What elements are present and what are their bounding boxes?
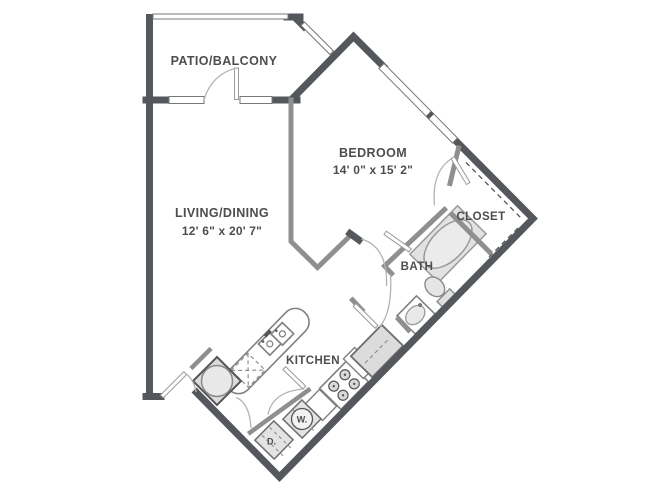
- bath-door-leaf: [353, 304, 378, 329]
- closet-label: CLOSET: [456, 211, 505, 223]
- window-mullion: [429, 114, 432, 117]
- floorplan-canvas: PATIO/BALCONY LIVING/DINING 12' 6" x 20'…: [0, 0, 650, 490]
- patio-door-arc: [204, 68, 237, 100]
- living-dims: 12' 6" x 20' 7": [182, 224, 262, 238]
- entry-door-leaf: [161, 372, 187, 398]
- patio-label: PATIO/BALCONY: [171, 54, 278, 68]
- bedroom-window: [379, 64, 458, 144]
- kitchen-label: KITCHEN: [286, 355, 340, 367]
- bath-label: BATH: [401, 261, 434, 273]
- laundry-door-leaf: [283, 367, 306, 389]
- bath-door-arc: [380, 275, 391, 328]
- living-label: LIVING/DINING: [175, 206, 269, 220]
- patio-railing: [153, 14, 288, 19]
- patio-door-leaf: [235, 68, 239, 100]
- living-window: [240, 97, 272, 104]
- bedroom-door-arc: [362, 239, 387, 286]
- floorplan-svg: PATIO/BALCONY LIVING/DINING 12' 6" x 20'…: [0, 0, 650, 490]
- windows: [153, 14, 458, 143]
- bedroom-label: BEDROOM: [339, 146, 407, 160]
- bedroom-dims: 14' 0" x 15' 2": [333, 163, 413, 177]
- utility-door-arc: [236, 398, 251, 429]
- living-window: [169, 97, 204, 104]
- dryer-label: D.: [267, 437, 276, 447]
- patio-railing-diagonal: [301, 22, 334, 55]
- washer-label: W.: [297, 415, 308, 425]
